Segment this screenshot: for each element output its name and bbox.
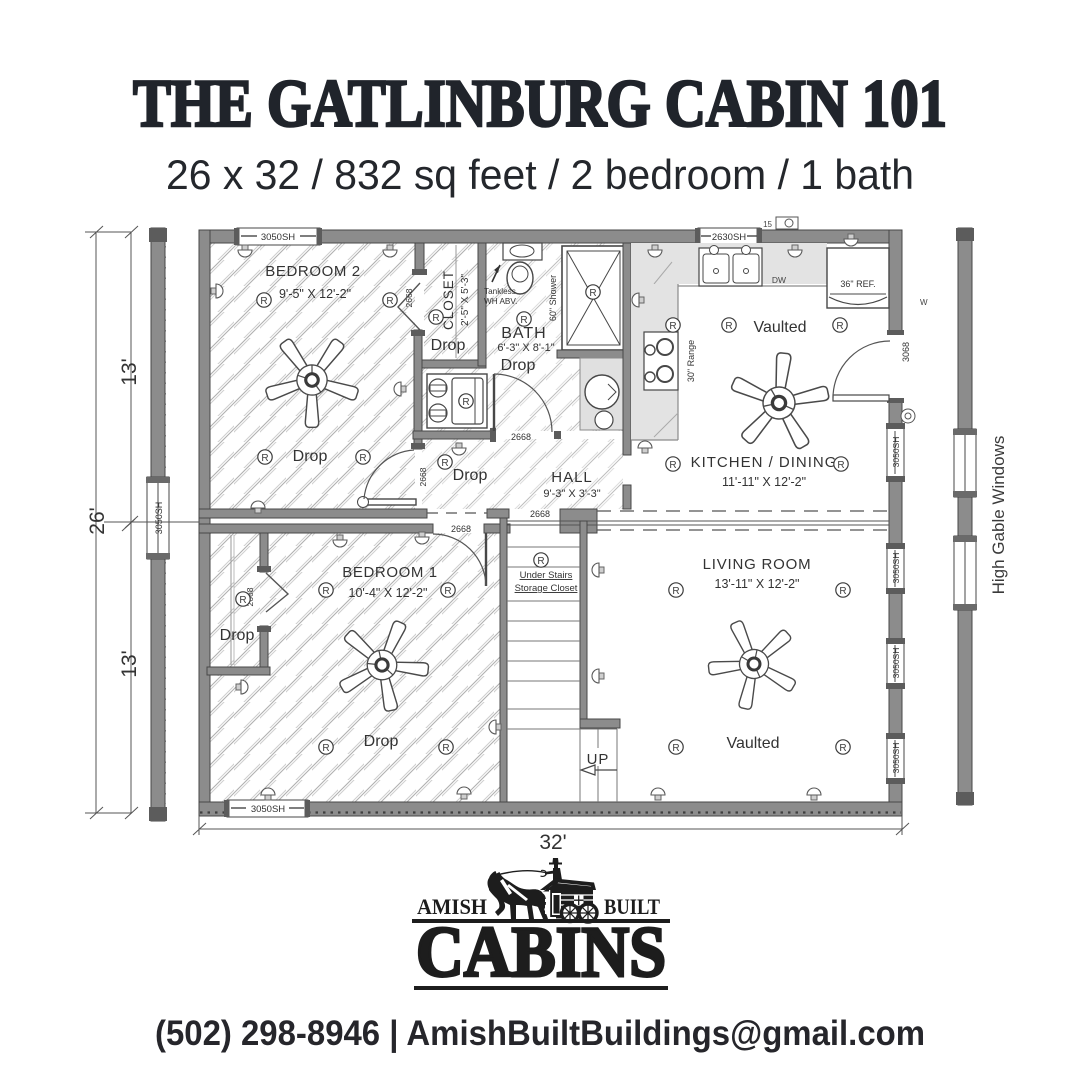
svg-text:15: 15 xyxy=(763,220,772,229)
svg-text:LIVING ROOM: LIVING ROOM xyxy=(703,556,812,573)
svg-text:3050SH: 3050SH xyxy=(261,232,295,243)
svg-text:UP: UP xyxy=(587,751,610,768)
svg-text:3050SH: 3050SH xyxy=(154,502,164,535)
svg-text:2668: 2668 xyxy=(511,432,531,442)
svg-text:Tankless: Tankless xyxy=(484,287,516,296)
svg-text:3050SH: 3050SH xyxy=(891,648,901,679)
svg-text:2668: 2668 xyxy=(530,509,550,519)
svg-text:Under Stairs: Under Stairs xyxy=(520,570,573,581)
svg-text:CLOSET: CLOSET xyxy=(441,270,456,330)
svg-text:9'-3" X 3'-3": 9'-3" X 3'-3" xyxy=(543,488,600,500)
svg-text:11'-11" X 12'-2": 11'-11" X 12'-2" xyxy=(722,475,806,489)
svg-text:6'-3" X 8'-1": 6'-3" X 8'-1" xyxy=(497,342,554,354)
svg-text:HALL: HALL xyxy=(551,469,593,486)
svg-text:(502) 298-8946 | AmishBuiltBui: (502) 298-8946 | AmishBuiltBuildings@gma… xyxy=(155,1014,925,1053)
svg-text:2668: 2668 xyxy=(404,288,414,307)
svg-text:3050SH: 3050SH xyxy=(891,437,901,468)
svg-text:CABINS: CABINS xyxy=(416,912,666,992)
svg-text:2'-5" X 5'-3": 2'-5" X 5'-3" xyxy=(460,274,471,327)
svg-text:Drop: Drop xyxy=(453,467,488,484)
svg-text:30" Range: 30" Range xyxy=(686,340,696,382)
svg-text:26 x 32 / 832 sq feet / 2 bedr: 26 x 32 / 832 sq feet / 2 bedroom / 1 ba… xyxy=(166,151,914,198)
svg-text:13': 13' xyxy=(118,650,141,677)
svg-text:10'-4" X 12'-2": 10'-4" X 12'-2" xyxy=(349,586,428,600)
svg-text:Drop: Drop xyxy=(293,448,328,465)
svg-text:High Gable Windows: High Gable Windows xyxy=(989,436,1008,595)
svg-text:Vaulted: Vaulted xyxy=(753,319,806,336)
svg-text:THE GATLINBURG CABIN 101: THE GATLINBURG CABIN 101 xyxy=(133,65,947,141)
svg-text:Drop: Drop xyxy=(220,627,255,644)
svg-text:Vaulted: Vaulted xyxy=(726,735,779,752)
svg-text:32': 32' xyxy=(539,831,566,854)
svg-text:Drop: Drop xyxy=(501,357,536,374)
svg-text:36" REF.: 36" REF. xyxy=(840,279,875,289)
svg-text:BATH: BATH xyxy=(501,325,546,342)
svg-text:Drop: Drop xyxy=(364,733,399,750)
svg-text:WH ABV.: WH ABV. xyxy=(484,297,517,306)
svg-text:3050SH: 3050SH xyxy=(251,804,285,815)
svg-text:13': 13' xyxy=(118,358,141,385)
svg-text:DW: DW xyxy=(772,275,786,285)
svg-text:Drop: Drop xyxy=(431,337,466,354)
svg-text:26': 26' xyxy=(86,507,109,534)
svg-text:Storage Closet: Storage Closet xyxy=(515,583,578,594)
svg-text:BEDROOM 2: BEDROOM 2 xyxy=(265,263,360,280)
svg-text:2630SH: 2630SH xyxy=(712,232,746,243)
svg-text:60" Shower: 60" Shower xyxy=(548,275,558,321)
svg-text:3050SH: 3050SH xyxy=(891,553,901,584)
svg-text:2668: 2668 xyxy=(451,524,471,534)
svg-text:13'-11" X 12'-2": 13'-11" X 12'-2" xyxy=(715,577,800,591)
svg-text:3050SH: 3050SH xyxy=(891,743,901,774)
svg-text:W: W xyxy=(920,298,928,307)
svg-text:2668: 2668 xyxy=(418,467,428,486)
svg-text:KITCHEN / DINING: KITCHEN / DINING xyxy=(691,454,838,471)
svg-text:3068: 3068 xyxy=(901,342,911,362)
svg-text:9'-5" X 12'-2": 9'-5" X 12'-2" xyxy=(279,287,351,301)
svg-text:BEDROOM 1: BEDROOM 1 xyxy=(342,564,437,581)
